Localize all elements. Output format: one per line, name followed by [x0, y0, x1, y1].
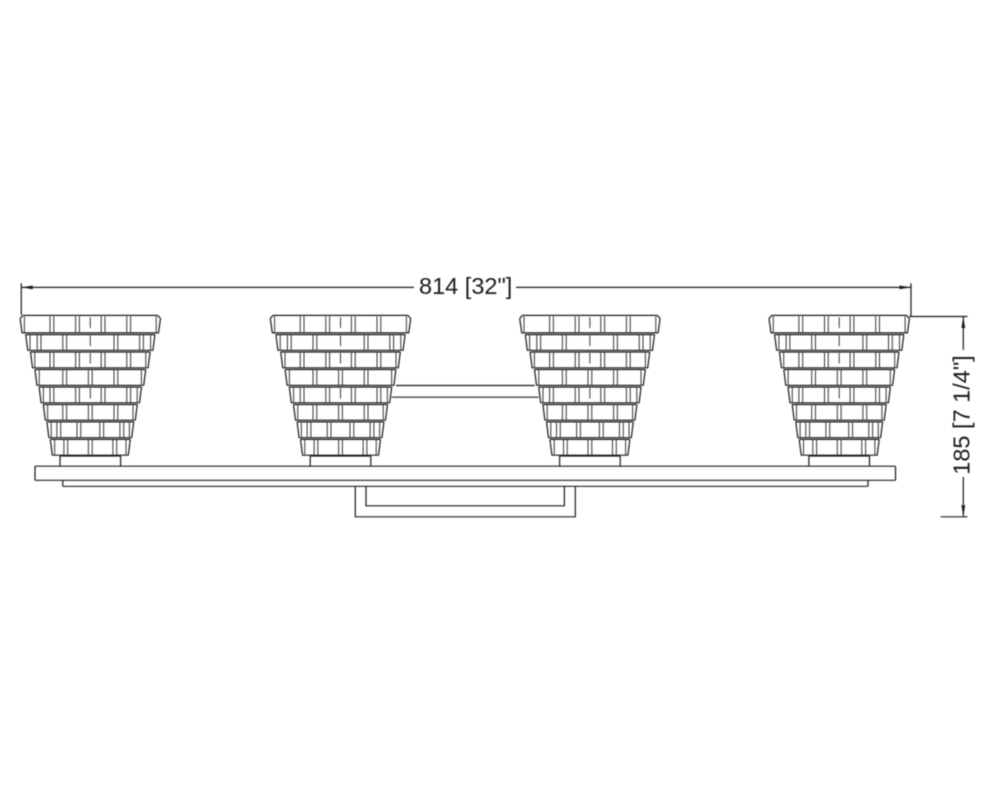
svg-text:185 [7 1/4"]: 185 [7 1/4"]	[948, 355, 974, 474]
svg-text:814 [32"]: 814 [32"]	[419, 273, 512, 299]
